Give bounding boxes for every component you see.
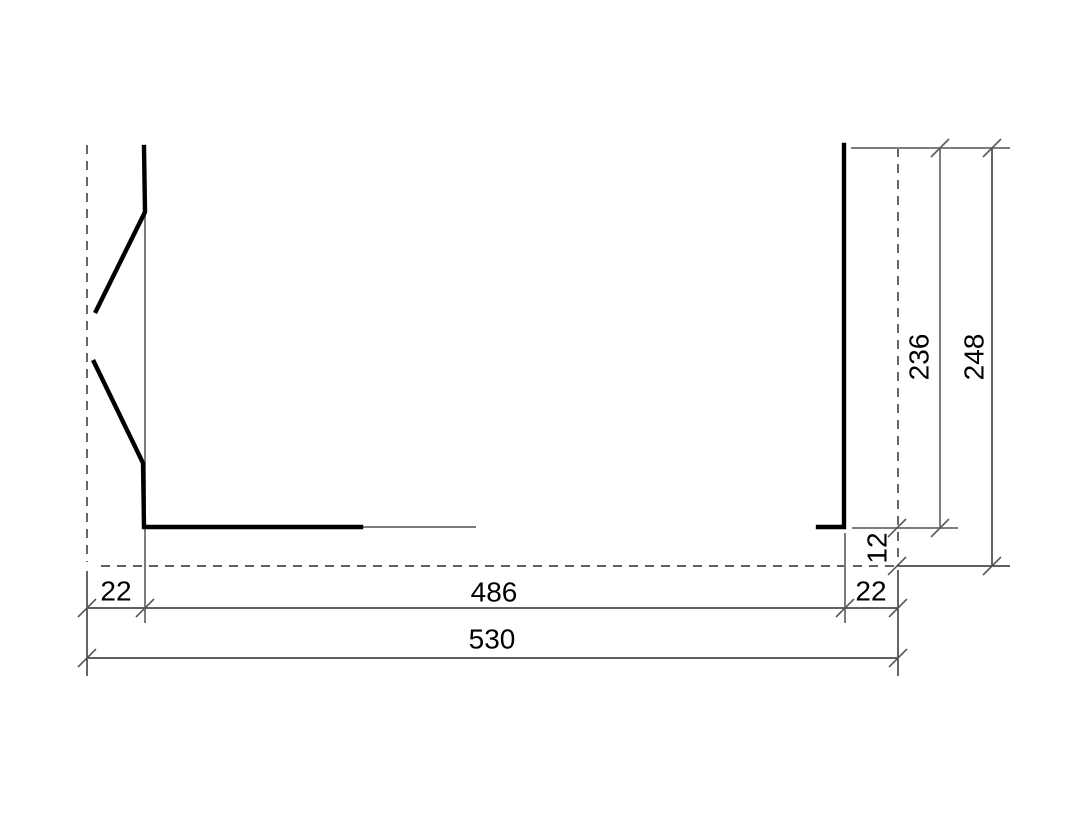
left-profile-lower-lip-and-flange <box>94 362 361 527</box>
right-profile <box>818 145 844 527</box>
dimension-label-left-flange: 22 <box>100 576 131 607</box>
dashed-reference-lines <box>87 145 898 566</box>
dimension-label-overall-height: 248 <box>959 334 990 381</box>
dimension-label-bottom-inset: 12 <box>862 532 893 563</box>
dimension-label-opening: 486 <box>471 577 518 608</box>
drawing-canvas: 22 486 22 530 12 236 248 <box>0 0 1087 815</box>
left-profile-upper-lip <box>96 147 145 311</box>
dimension-labels: 22 486 22 530 12 236 248 <box>100 334 989 655</box>
dimension-label-right-flange: 22 <box>855 576 886 607</box>
right-profile-web-and-flange <box>818 145 844 527</box>
dimension-label-inner-height: 236 <box>904 334 935 381</box>
dimension-label-overall-width: 530 <box>469 624 516 655</box>
left-profile <box>94 147 361 527</box>
profile-dimension-drawing: 22 486 22 530 12 236 248 <box>0 0 1087 815</box>
